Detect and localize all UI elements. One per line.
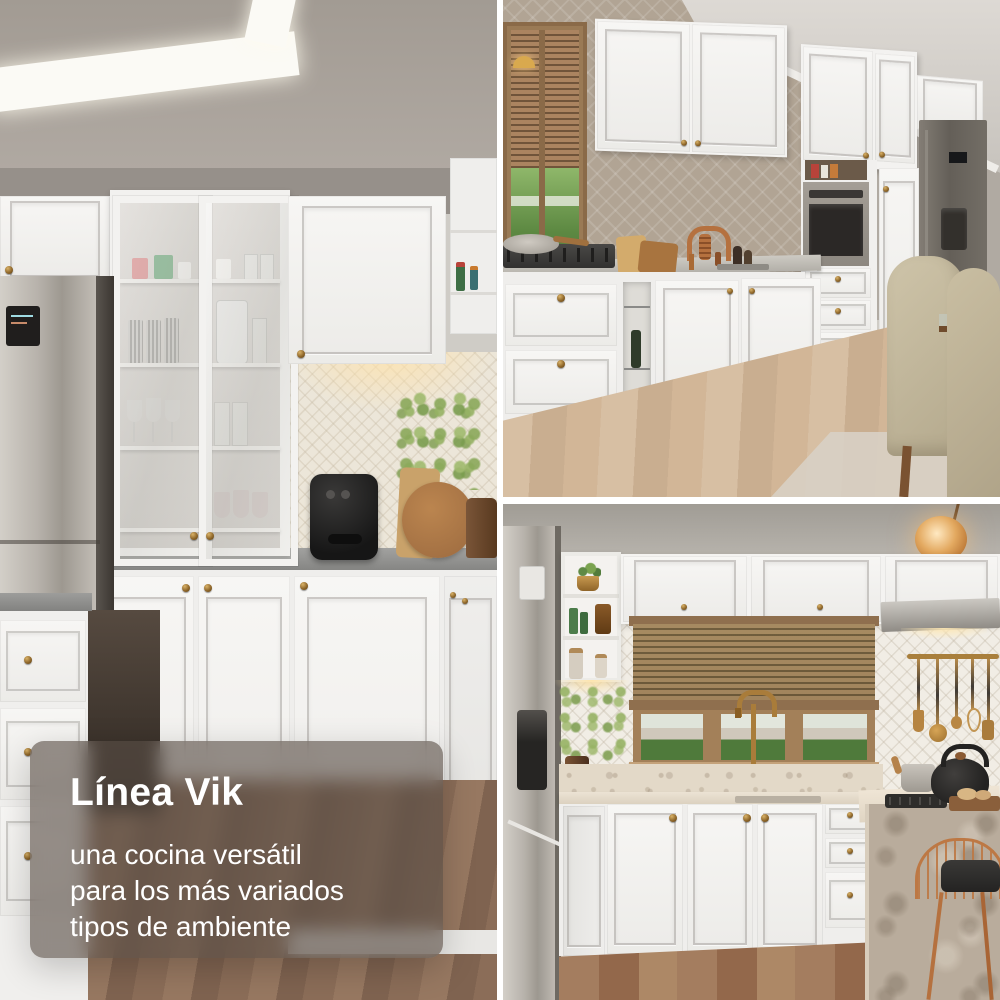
green-bottle [456, 262, 465, 291]
cabinet-knob [204, 584, 212, 592]
cabinet-door [597, 21, 690, 152]
window-pane [641, 714, 703, 760]
cabinet-knob [190, 532, 198, 540]
window-pane [803, 714, 867, 760]
drawer-knob [835, 308, 841, 314]
cabinet-knob [817, 604, 823, 610]
sink [735, 796, 821, 803]
utensil-handle [917, 659, 920, 711]
base-door [607, 804, 683, 954]
utensil-handle [971, 659, 974, 709]
upper-cabinet-run [595, 19, 787, 158]
glass-jar [569, 648, 583, 679]
freezer-divider [0, 540, 100, 544]
cabinet-knob [681, 140, 687, 146]
niche-books [830, 164, 838, 178]
caption-overlay: Línea Vik una cocina versátil para los m… [30, 741, 443, 958]
refrigerator-display [949, 152, 967, 163]
photo-left-kitchen: Línea Vik una cocina versátil para los m… [0, 0, 497, 1000]
island-countertop [0, 593, 92, 611]
plant-foliage [555, 684, 627, 762]
green-bottle [569, 608, 578, 634]
cabinet-knob [5, 266, 13, 274]
cabinet-knob [681, 604, 687, 610]
upper-cabinet-right [288, 196, 446, 364]
refrigerator-control [519, 566, 545, 600]
cabinet-knob [182, 584, 190, 592]
faucet-copper-coil [699, 234, 711, 260]
corner-shelf-line [450, 230, 497, 233]
cabinet-knob [761, 814, 769, 822]
sink [717, 264, 769, 270]
photo-top-right-kitchen [503, 0, 1000, 497]
drawer-knob [557, 360, 565, 368]
cooktop-grate [889, 797, 943, 805]
marble-backsplash [559, 764, 883, 794]
cabinet-knob [450, 592, 456, 598]
niche-books [821, 165, 828, 178]
cabinet-knob [206, 532, 214, 540]
utensil-ladle [951, 716, 962, 729]
drawer-knob [847, 892, 853, 898]
stool-seat [941, 860, 1000, 892]
drawer-knob [835, 276, 841, 282]
shelf-divider [563, 594, 619, 598]
caption-line: una cocina versátil [70, 837, 344, 873]
cabinet-door [623, 556, 747, 622]
kitchen-collage: Línea Vik una cocina versátil para los m… [0, 0, 1000, 1000]
base-door-corner [563, 806, 605, 956]
bread-loaf [975, 790, 991, 800]
amber-bottle [595, 604, 611, 634]
cabinet-door [803, 46, 873, 165]
cabinet-door [875, 53, 915, 164]
bread-loaf [957, 788, 977, 800]
refrigerator-display-text [11, 315, 33, 317]
glass-door-left [113, 196, 212, 566]
cabinet-knob [462, 598, 468, 604]
cabinet-door [751, 556, 881, 622]
drawer-knob [24, 656, 32, 664]
air-fryer-knob [326, 490, 335, 499]
bread-board [949, 796, 1000, 811]
cabinet-knob [883, 186, 889, 192]
caption-title: Línea Vik [70, 771, 243, 815]
air-fryer [310, 474, 378, 560]
cabinet-knob [669, 814, 677, 822]
faucet-base [689, 254, 694, 270]
glass-door-right [199, 196, 298, 566]
caption-line: para los más variados [70, 873, 344, 909]
range-hood [881, 598, 1000, 632]
corner-shelf-line [450, 292, 497, 295]
steel-pan [503, 234, 559, 254]
faucet-brass-arc [737, 690, 777, 717]
base-door [687, 804, 753, 954]
photo-bottom-right-kitchen [503, 504, 1000, 1000]
cabinet-knob [879, 151, 885, 157]
base-door [757, 804, 823, 954]
caption-line: tipos de ambiente [70, 909, 344, 945]
refrigerator-dispenser [941, 208, 967, 250]
air-fryer-handle [328, 534, 362, 544]
cabinet-knob [863, 152, 869, 158]
teal-bottle [470, 266, 478, 290]
caption-body: una cocina versátil para los más variado… [70, 837, 344, 945]
cabinet-knob [695, 140, 701, 146]
utensil-handle [936, 659, 939, 725]
cutting-board-round [402, 482, 474, 558]
hood-light-glow [901, 628, 987, 638]
teapot-lid-knob [955, 752, 966, 760]
upper-cabinet-tower-top [801, 44, 917, 172]
rack-wire [624, 368, 650, 370]
upper-cabinet-left [0, 196, 110, 282]
cabinet-knob [297, 350, 305, 358]
saucepan [901, 764, 935, 792]
rack-wire [624, 306, 650, 308]
window-fence [511, 196, 579, 206]
cabinet-knob [300, 582, 308, 590]
glass-jar [595, 654, 607, 678]
refrigerator-display-text [11, 322, 27, 324]
island-drawer [0, 620, 86, 702]
wine-bottle [631, 330, 641, 368]
utensil-handle [987, 659, 990, 721]
drawer-knob [847, 848, 853, 854]
oven-controls [809, 190, 863, 198]
cabinet-door [692, 24, 785, 155]
utensil-slotted-turner [982, 720, 994, 740]
brass-pot [577, 576, 599, 591]
refrigerator-dispenser [517, 710, 547, 790]
drawer-knob [557, 294, 565, 302]
drawer-knob [847, 812, 853, 818]
oven-window [809, 204, 863, 256]
cabinet-knob [727, 288, 733, 294]
cabinet-knob [749, 288, 755, 294]
faucet-spout-tip [735, 708, 741, 718]
corner-shelf-unit [450, 158, 497, 334]
window-blinds [511, 30, 579, 168]
green-bottle [580, 612, 588, 634]
dining-chair [947, 268, 1000, 497]
refrigerator-display [6, 306, 40, 346]
utensil-handle [955, 659, 958, 717]
utensil-spatula [913, 710, 924, 732]
air-fryer-knob [341, 490, 350, 499]
wood-vase [466, 498, 497, 558]
utensil-pan-disc [929, 724, 947, 742]
shelf-divider [563, 636, 619, 640]
utensil-rail [907, 654, 999, 659]
cabinet-knob [743, 814, 751, 822]
niche-books [811, 164, 819, 178]
cutting-board [637, 240, 678, 276]
